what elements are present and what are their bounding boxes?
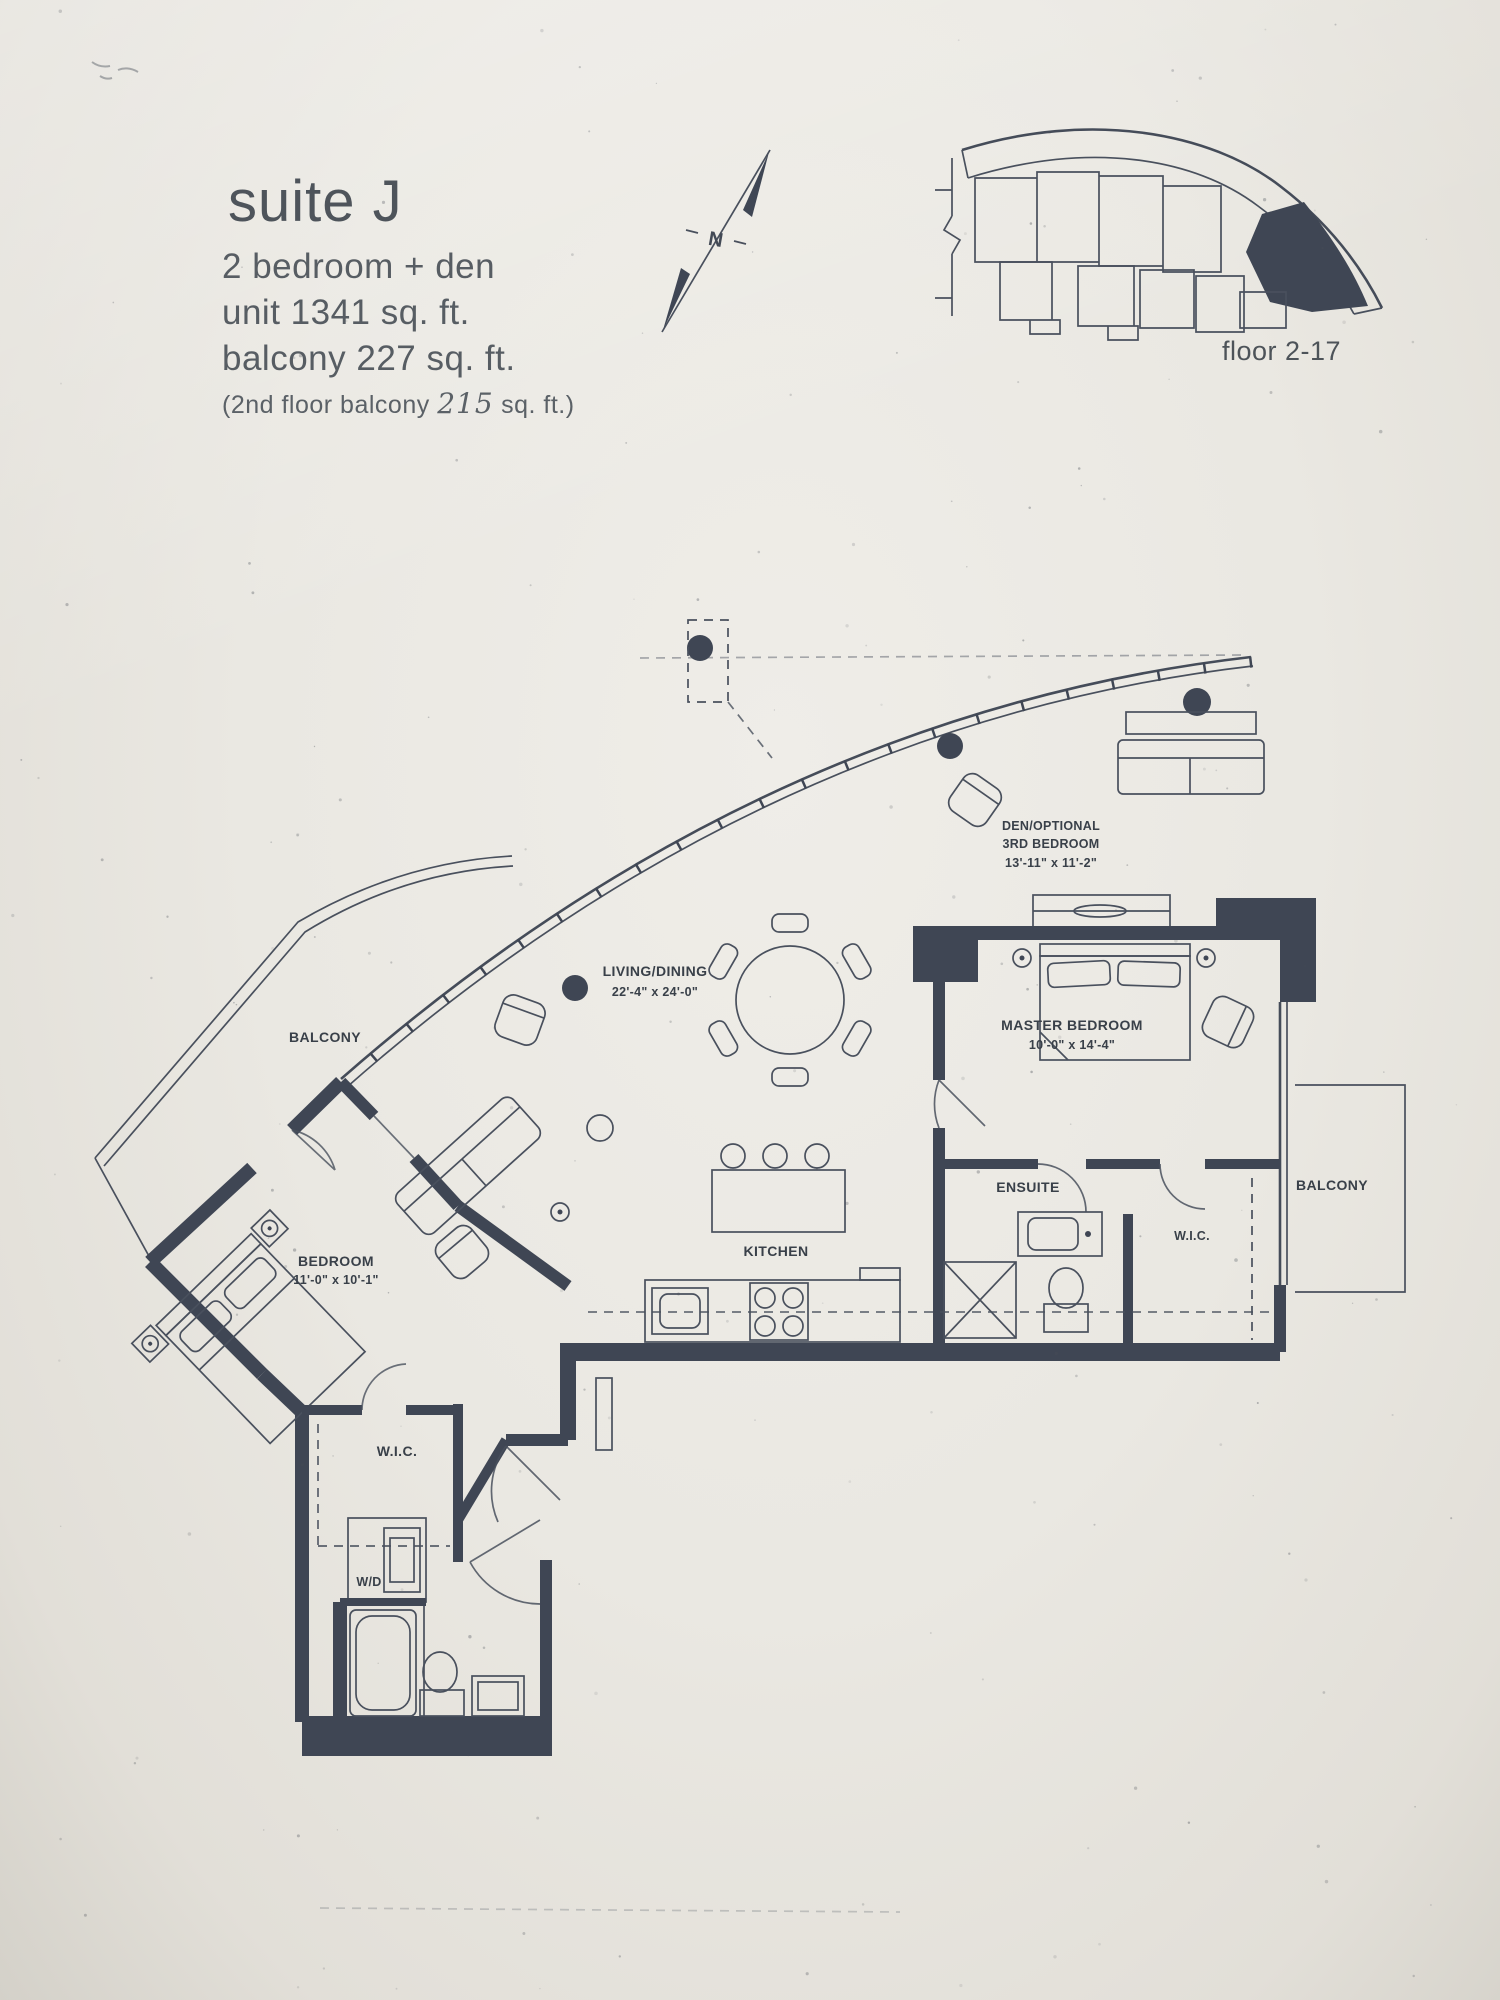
armchair [492,992,548,1048]
dining-table [707,914,874,1086]
label-balcony-left: BALCONY [289,1029,361,1045]
master-window-wall [1280,1002,1287,1352]
ensuite-walls [939,1164,1280,1352]
scanned-floorplan-page: suite J 2 bedroom + den unit 1341 sq. ft… [0,0,1500,2000]
label-den-1: DEN/OPTIONAL [1002,819,1100,833]
den-chair [944,769,1005,830]
north-label: N [707,228,725,252]
master-chair [1199,993,1257,1051]
wic-bedroom-walls [302,1364,458,1562]
den-closet [1033,895,1170,928]
side-table [587,1115,613,1141]
floorplan-drawing: N [0,0,1500,2000]
bedroom-balcony-wall [150,1082,341,1262]
floor-lamp-icon [551,1203,569,1221]
label-wic-bedroom: W.I.C. [377,1443,418,1459]
dims-den: 13'-11" x 11'-2" [1005,856,1097,870]
keyplan-building [935,129,1382,340]
kitchen-island [712,1144,845,1232]
label-living-dining: LIVING/DINING [603,963,708,979]
sink-icon [472,1676,524,1716]
toilet-icon [420,1652,464,1716]
shower-icon [944,1262,1016,1338]
vanity-sink-icon [1018,1212,1102,1256]
north-arrow: N [662,150,770,332]
label-washer-dryer: W/D [356,1575,381,1589]
den-corner-wall [1216,898,1316,1002]
label-bedroom: BEDROOM [298,1253,374,1269]
label-wic-master: W.I.C. [1174,1229,1210,1243]
ensuite-toilet-icon [1044,1268,1088,1332]
bathroom-walls [302,1520,552,1756]
label-master-bedroom: MASTER BEDROOM [1001,1017,1143,1033]
den-sofa [1118,712,1264,794]
dims-bedroom: 11'-0" x 10'-1" [293,1273,379,1287]
dims-master-bedroom: 10'-0" x 14'-4" [1029,1038,1115,1052]
label-ensuite: ENSUITE [996,1179,1059,1195]
label-balcony-right: BALCONY [1296,1177,1368,1193]
washer-dryer-icon [348,1518,426,1602]
bathtub-icon [350,1606,424,1716]
label-den-2: 3RD BEDROOM [1002,837,1099,851]
wall-block [913,926,978,982]
bedroom-exterior-wall [150,1262,302,1722]
entry-corridor-walls [458,1352,612,1522]
columns [562,635,1211,1001]
kitchen-counter [645,1268,900,1342]
bedroom-living-wall [341,1082,568,1286]
scan-smudge [92,62,138,79]
label-kitchen: KITCHEN [743,1243,808,1259]
dims-living-dining: 22'-4" x 24'-0" [612,985,698,999]
